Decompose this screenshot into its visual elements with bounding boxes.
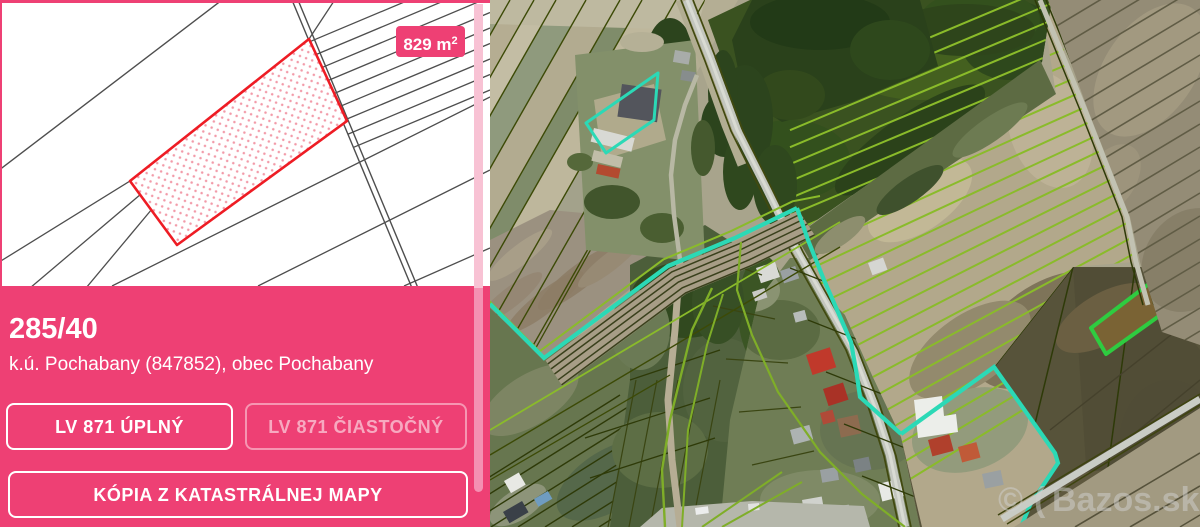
svg-text:(: (: [1034, 481, 1046, 519]
svg-text:Bazos.sk: Bazos.sk: [1052, 481, 1199, 519]
svg-text:©: ©: [998, 481, 1023, 519]
